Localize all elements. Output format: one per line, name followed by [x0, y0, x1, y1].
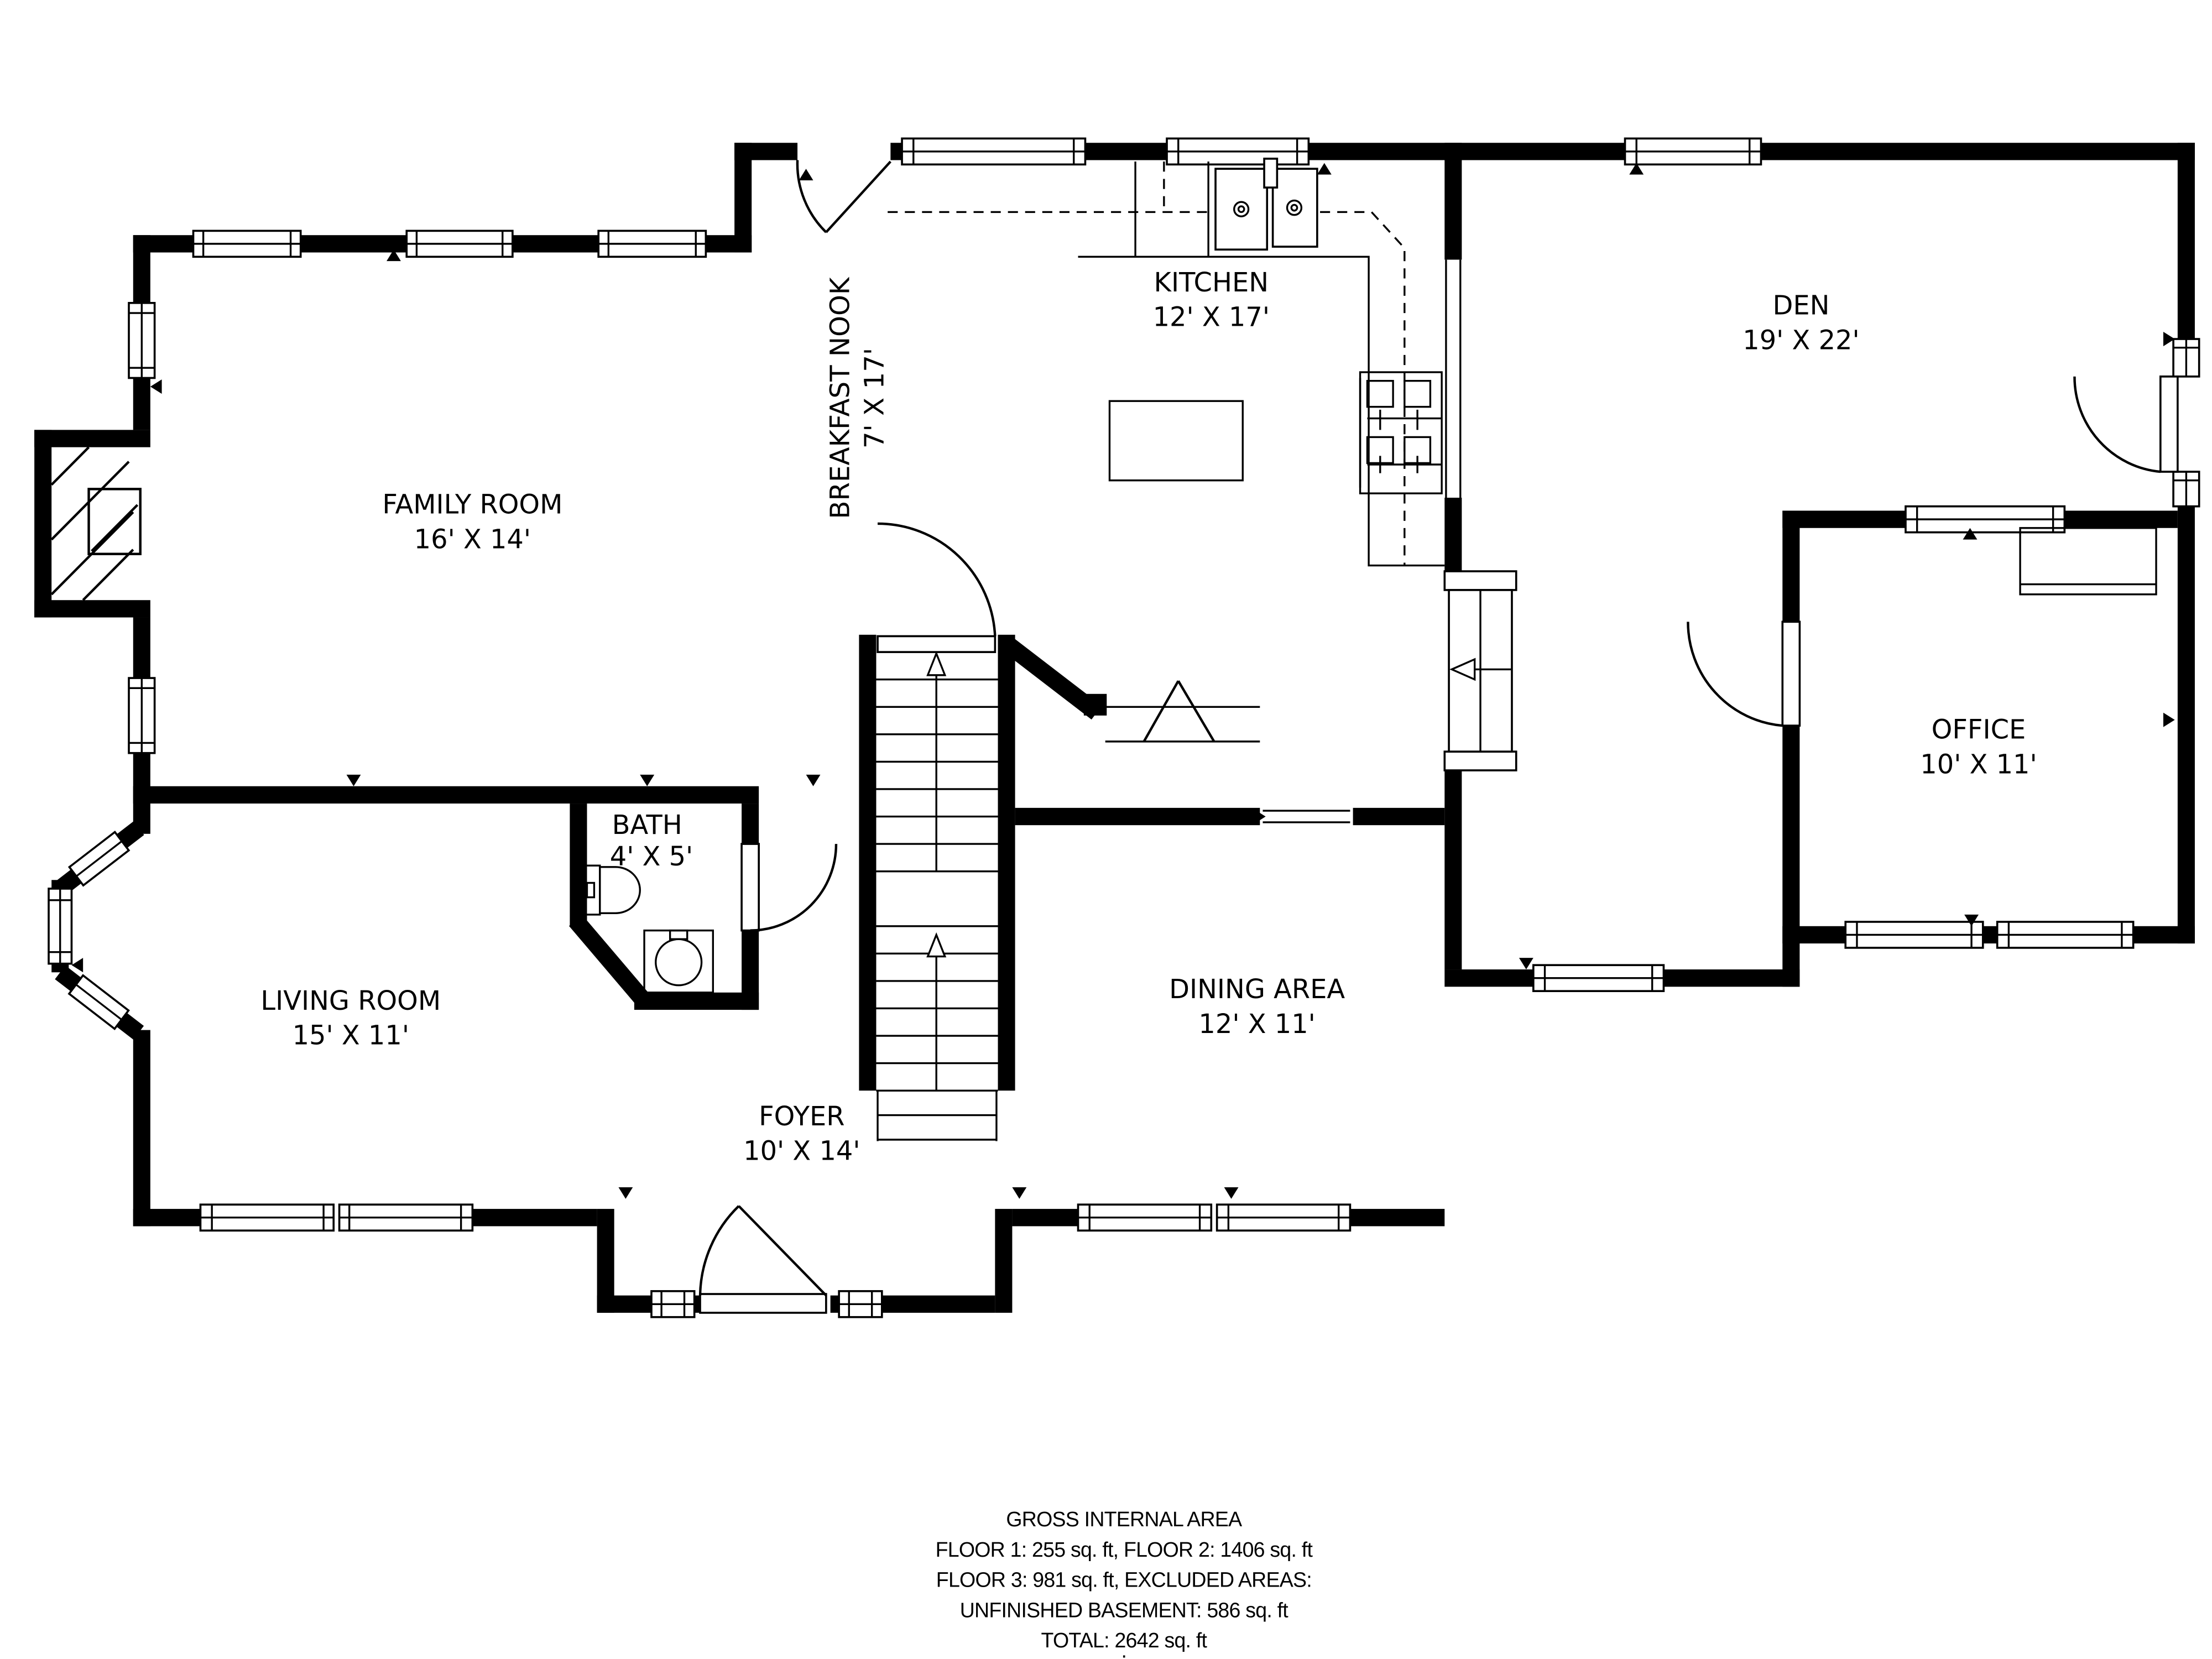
kitchen-fixtures	[888, 159, 1444, 566]
window-icon	[2173, 472, 2199, 507]
room-label-office: OFFICE 10' X 11'	[1920, 714, 2037, 780]
summary-line-1: FLOOR 1: 255 sq. ft, FLOOR 2: 1406 sq. f…	[936, 1538, 1313, 1561]
summary-footnote: .	[1121, 1639, 1127, 1659]
room-dims: 10' X 11'	[1920, 749, 2037, 780]
window-icon	[1167, 138, 1308, 164]
bath-sink-icon	[644, 931, 713, 993]
room-name: DEN	[1772, 290, 1829, 321]
sink-icon	[1215, 159, 1317, 249]
room-dims: 12' X 17'	[1153, 301, 1270, 332]
room-label-living-room: LIVING ROOM 15' X 11'	[260, 985, 441, 1051]
door-swing-icon	[2074, 377, 2177, 472]
kitchen-island	[1109, 401, 1243, 480]
window-icon	[902, 138, 1085, 164]
door-swing-icon	[742, 844, 836, 931]
summary-title: GROSS INTERNAL AREA	[1006, 1507, 1243, 1531]
window-icon	[200, 1204, 333, 1230]
window-icon	[1845, 922, 1983, 948]
window-icon	[129, 678, 155, 753]
room-dims: 16' X 14'	[414, 524, 531, 555]
door-swing-icon	[797, 160, 890, 232]
window-icon	[1533, 965, 1664, 991]
stove-icon	[1360, 372, 1442, 493]
window-icon	[2173, 339, 2199, 377]
room-dims: 15' X 11'	[293, 1020, 409, 1051]
room-dims: 4' X 5'	[610, 841, 693, 872]
window-icon	[129, 303, 155, 378]
door-swing-icon	[1688, 622, 1799, 726]
stairs-main	[876, 652, 998, 1141]
room-label-foyer: FOYER 10' X 14'	[743, 1101, 860, 1167]
window-icon	[1078, 1204, 1212, 1230]
window-icon	[1217, 1204, 1350, 1230]
open-door-icon	[1144, 681, 1214, 742]
room-label-dining-area: DINING AREA 12' X 11'	[1169, 974, 1345, 1040]
interior-lines	[1105, 260, 1460, 822]
bay-window	[49, 819, 146, 1042]
bath-fixtures	[583, 865, 713, 993]
window-icon	[340, 1204, 473, 1230]
office-closet	[2020, 528, 2156, 594]
room-dims: 12' X 11'	[1198, 1009, 1315, 1040]
area-summary: GROSS INTERNAL AREA FLOOR 1: 255 sq. ft,…	[936, 1507, 1313, 1659]
window-icon	[406, 231, 513, 257]
room-name: BREAKFAST NOOK	[825, 276, 855, 519]
room-name: FAMILY ROOM	[382, 489, 562, 520]
stairs-basement	[1444, 571, 1516, 770]
room-name: LIVING ROOM	[260, 985, 441, 1016]
room-dims: 19' X 22'	[1743, 325, 1859, 356]
room-dims: 10' X 14'	[743, 1135, 860, 1166]
door-swing-icon	[878, 524, 995, 652]
room-name: BATH	[612, 810, 682, 841]
window-icon	[651, 1291, 695, 1317]
room-name: KITCHEN	[1154, 267, 1269, 298]
room-label-family-room: FAMILY ROOM 16' X 14'	[382, 489, 562, 555]
room-name: FOYER	[759, 1101, 844, 1132]
door-swing-icon	[700, 1206, 826, 1313]
fireplace	[34, 430, 150, 617]
room-label-bath: BATH 4' X 5'	[610, 810, 693, 873]
room-label-kitchen: KITCHEN 12' X 17'	[1153, 267, 1270, 333]
room-label-den: DEN 19' X 22'	[1743, 290, 1859, 356]
summary-line-2: FLOOR 3: 981 sq. ft, EXCLUDED AREAS:	[936, 1568, 1312, 1591]
window-icon	[839, 1291, 882, 1317]
room-label-breakfast-nook: BREAKFAST NOOK 7' X 17'	[825, 276, 890, 519]
floor-plan: FAMILY ROOM 16' X 14' BREAKFAST NOOK 7' …	[0, 0, 2212, 1659]
toilet-icon	[583, 865, 640, 915]
room-name: OFFICE	[1932, 714, 2026, 745]
room-dims: 7' X 17'	[859, 348, 890, 448]
window-icon	[194, 231, 301, 257]
window-icon	[598, 231, 706, 257]
summary-line-3: UNFINISHED BASEMENT: 586 sq. ft	[960, 1598, 1289, 1621]
room-name: DINING AREA	[1169, 974, 1345, 1005]
window-icon	[1997, 922, 2133, 948]
window-icon	[1625, 138, 1761, 164]
